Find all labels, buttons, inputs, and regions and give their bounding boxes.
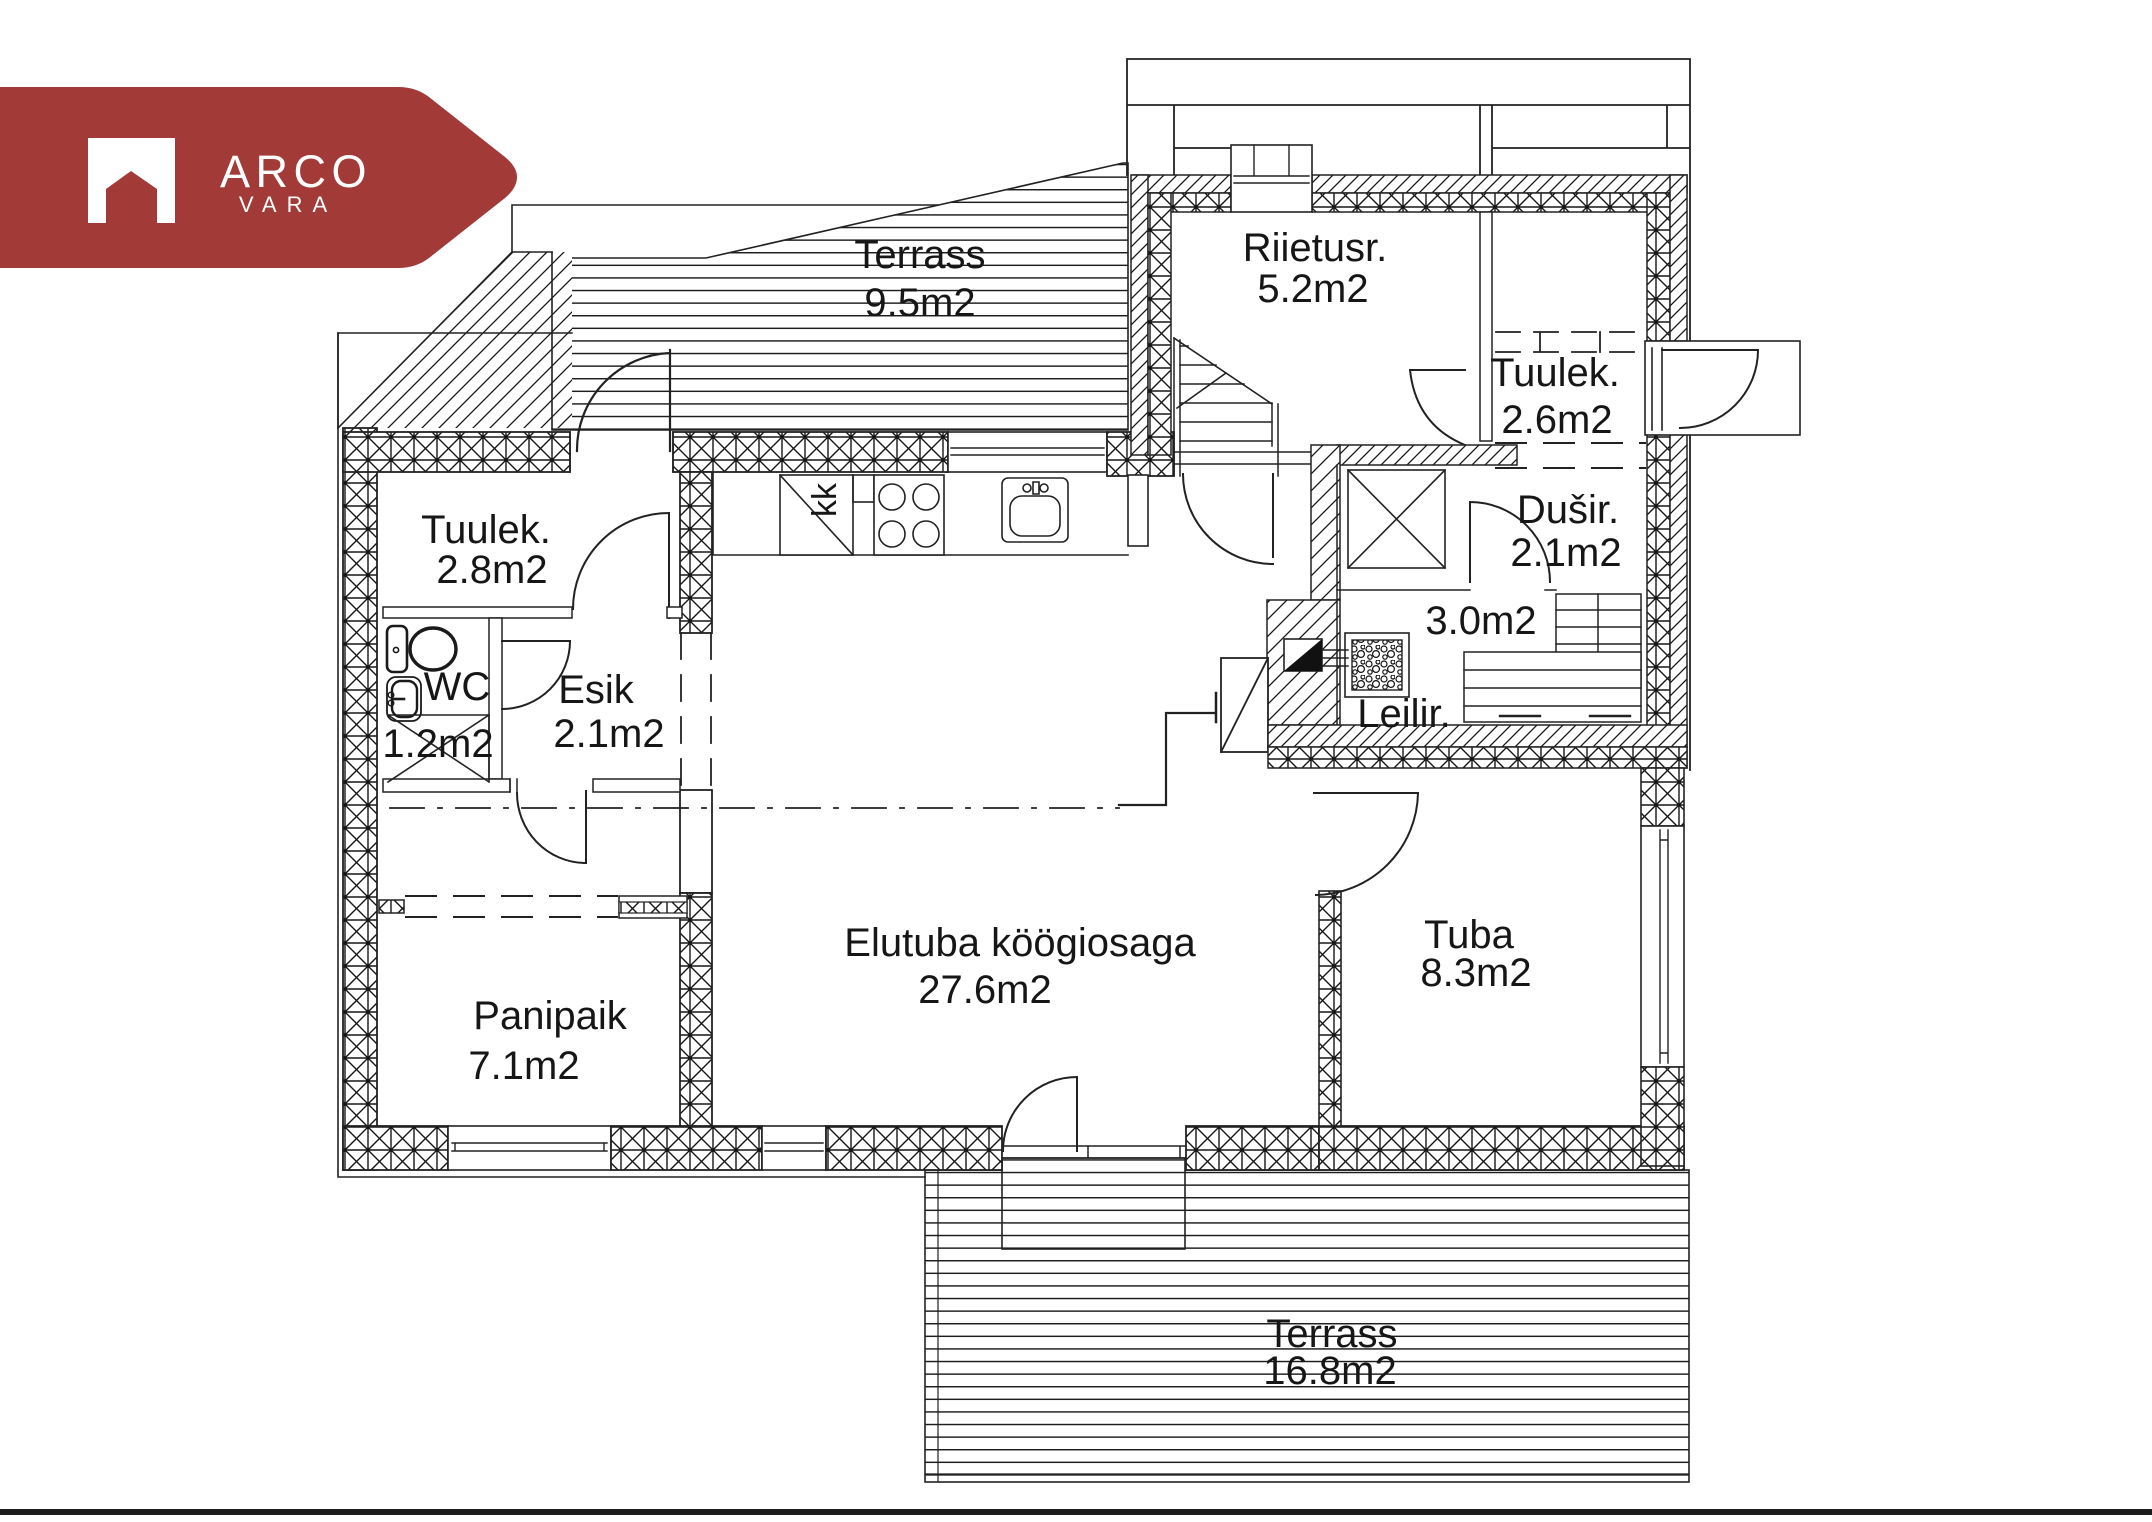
svg-text:VARA: VARA	[239, 192, 337, 217]
svg-text:Panipaik: Panipaik	[473, 994, 627, 1038]
svg-text:3.0m2: 3.0m2	[1425, 599, 1536, 643]
svg-text:8.3m2: 8.3m2	[1420, 951, 1531, 995]
svg-text:kk: kk	[806, 482, 844, 517]
svg-text:7.1m2: 7.1m2	[468, 1044, 579, 1088]
svg-text:16.8m2: 16.8m2	[1263, 1349, 1396, 1393]
svg-text:Elutuba köögiosaga: Elutuba köögiosaga	[844, 921, 1196, 965]
svg-text:Leilir.: Leilir.	[1357, 692, 1450, 736]
svg-text:WC: WC	[424, 665, 491, 709]
svg-text:Tuulek.: Tuulek.	[421, 508, 551, 552]
svg-text:Terrass: Terrass	[854, 233, 985, 277]
svg-text:Esik: Esik	[558, 668, 635, 712]
svg-text:2.8m2: 2.8m2	[436, 548, 547, 592]
svg-text:27.6m2: 27.6m2	[918, 968, 1051, 1012]
svg-text:2.6m2: 2.6m2	[1501, 398, 1612, 442]
svg-text:1.2m2: 1.2m2	[382, 722, 493, 766]
svg-text:ARCO: ARCO	[220, 146, 372, 197]
svg-text:9.5m2: 9.5m2	[864, 281, 975, 325]
svg-text:Tuulek.: Tuulek.	[1490, 351, 1620, 395]
svg-text:Dušir.: Dušir.	[1517, 488, 1619, 532]
svg-text:5.2m2: 5.2m2	[1257, 267, 1368, 311]
svg-text:Riietusr.: Riietusr.	[1243, 226, 1388, 270]
svg-text:2.1m2: 2.1m2	[553, 712, 664, 756]
svg-text:2.1m2: 2.1m2	[1510, 531, 1621, 575]
